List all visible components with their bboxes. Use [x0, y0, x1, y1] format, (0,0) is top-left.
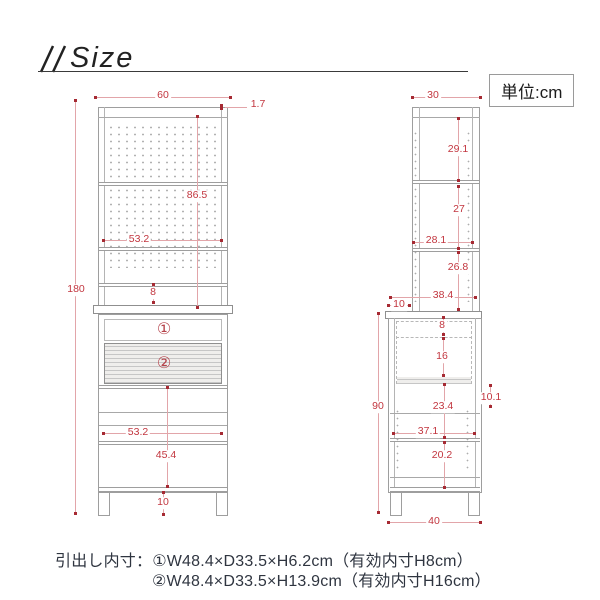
dim-side-lower-height: 90 [370, 401, 386, 413]
dim-line-front-upper-inner-width [103, 240, 222, 241]
front-top-board-line [98, 117, 228, 118]
side-rail-line-2 [390, 477, 480, 478]
side-lower-back-line [475, 318, 476, 493]
dim-front-leg-height: 10 [155, 497, 171, 509]
front-left-post-line [104, 107, 105, 310]
dim-line-front-upper-height [197, 116, 198, 308]
dim-side-shelf-space2: 20.2 [430, 450, 454, 462]
dim-front-width-top: 60 [155, 90, 171, 102]
side-top-board-line [412, 117, 480, 118]
dim-line-front-lower-inner-width [103, 433, 222, 434]
side-bottom-shelf [390, 487, 480, 492]
drawer1-number-badge: ① [157, 319, 171, 339]
drawer-inner-size-line2: ②W48.4×D33.5×H13.9cm（有効内寸H16cm） [152, 567, 491, 591]
dim-side-upper-space1: 29.1 [446, 144, 470, 156]
dim-side-lower-inner-depth: 38.4 [431, 290, 455, 302]
front-shelf-3 [99, 441, 227, 445]
side-leg-front [390, 492, 402, 516]
dim-front-upper-height: 86.5 [185, 190, 209, 202]
front-leg-left [98, 492, 110, 516]
front-leg-right [216, 492, 228, 516]
dim-front-total-height: 180 [65, 284, 87, 296]
dim-front-lower-inner-height: 45.4 [154, 450, 178, 462]
side-drawer-bottom-hatch [397, 377, 471, 384]
dim-side-depth-top: 30 [425, 90, 441, 102]
dim-side-upper-inner-depth: 28.1 [424, 235, 448, 247]
dim-side-drawer1-height: 8 [437, 320, 447, 332]
front-right-post-line [221, 107, 222, 310]
front-shelf-1 [99, 182, 227, 186]
dim-line-side-upper-space2 [458, 186, 459, 249]
dim-line-front-lower-inner-height [167, 387, 168, 487]
drawer2-number-badge: ② [157, 353, 171, 373]
front-rail-line-1 [99, 412, 227, 413]
dim-line-side-depth-top [412, 97, 481, 98]
side-pinholes-lower-front [396, 408, 399, 470]
dim-front-lower-inner-width: 53.2 [126, 427, 150, 439]
dim-line-side-lower-height [378, 313, 379, 513]
dim-side-shelf-inner-depth: 37.1 [416, 426, 440, 438]
dim-front-upper-inner-width: 53.2 [127, 234, 151, 246]
side-leg-back [468, 492, 480, 516]
side-pinholes-upper-front [414, 130, 417, 302]
dim-front-top-edge: 1.7 [249, 99, 268, 111]
dim-side-drawer2-height: 16 [434, 351, 450, 363]
front-shelf-2 [99, 247, 227, 251]
dim-front-shelf-gap: 8 [148, 287, 158, 299]
unit-label: 単位:cm [489, 74, 574, 107]
size-diagram-page: Size 単位:cm ① ② 60 1.7 180 86.5 [0, 0, 600, 600]
front-countertop [93, 305, 233, 314]
dim-side-upper-space3: 26.8 [446, 262, 470, 274]
front-bottom-board [99, 283, 227, 287]
side-front-post-line [419, 107, 420, 312]
front-rail-line-2 [99, 425, 227, 426]
dim-side-depth-bottom: 40 [426, 516, 442, 528]
title-underline [38, 71, 468, 72]
side-shelf-2 [413, 248, 479, 252]
dim-side-upper-space2: 27 [451, 204, 467, 216]
side-pinholes-lower-back [466, 408, 469, 470]
side-pinholes-upper-back [467, 130, 470, 302]
side-drawer-divider [396, 337, 472, 338]
double-slash-icon [38, 44, 70, 74]
side-back-post-line [472, 107, 473, 312]
dim-side-shelf-space1: 23.4 [431, 401, 455, 413]
dim-side-back-gap: 10.1 [479, 392, 503, 404]
dim-mark-front-edge [220, 104, 223, 110]
side-shelf-1 [413, 180, 479, 184]
front-under-drawer-board [99, 385, 227, 389]
dim-leader-front-edge [225, 107, 247, 108]
side-lower-front-line [394, 318, 395, 493]
dim-line-front-total-height [75, 100, 76, 514]
dim-side-front-overhang: 10 [391, 299, 407, 311]
